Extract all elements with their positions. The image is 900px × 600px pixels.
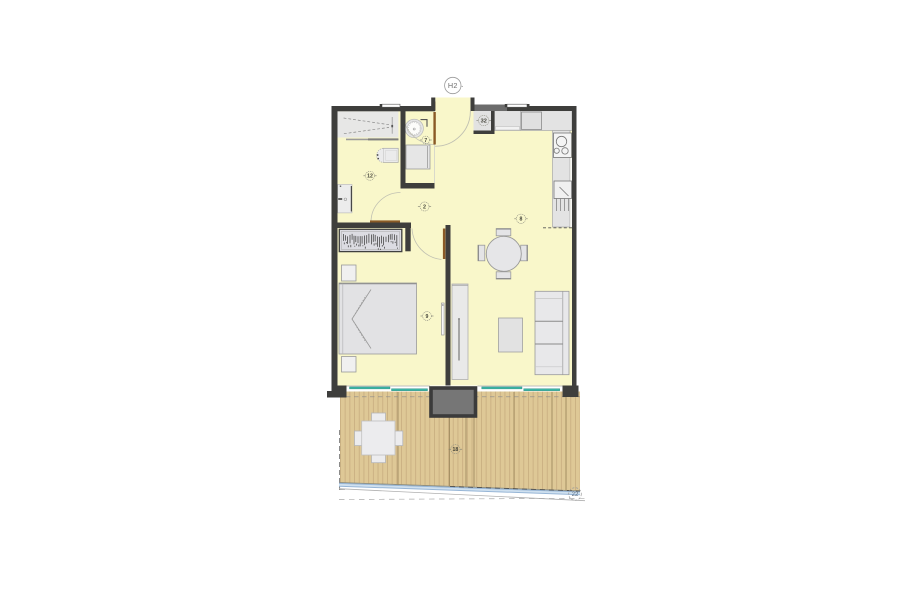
svg-text:22: 22 xyxy=(572,492,579,498)
svg-text:H2: H2 xyxy=(448,81,458,90)
svg-text:8: 8 xyxy=(520,217,523,223)
svg-text:18: 18 xyxy=(453,447,459,453)
svg-text:2: 2 xyxy=(423,204,426,210)
svg-text:12: 12 xyxy=(367,174,373,180)
svg-text:9: 9 xyxy=(426,314,429,320)
svg-text:32: 32 xyxy=(481,119,487,125)
